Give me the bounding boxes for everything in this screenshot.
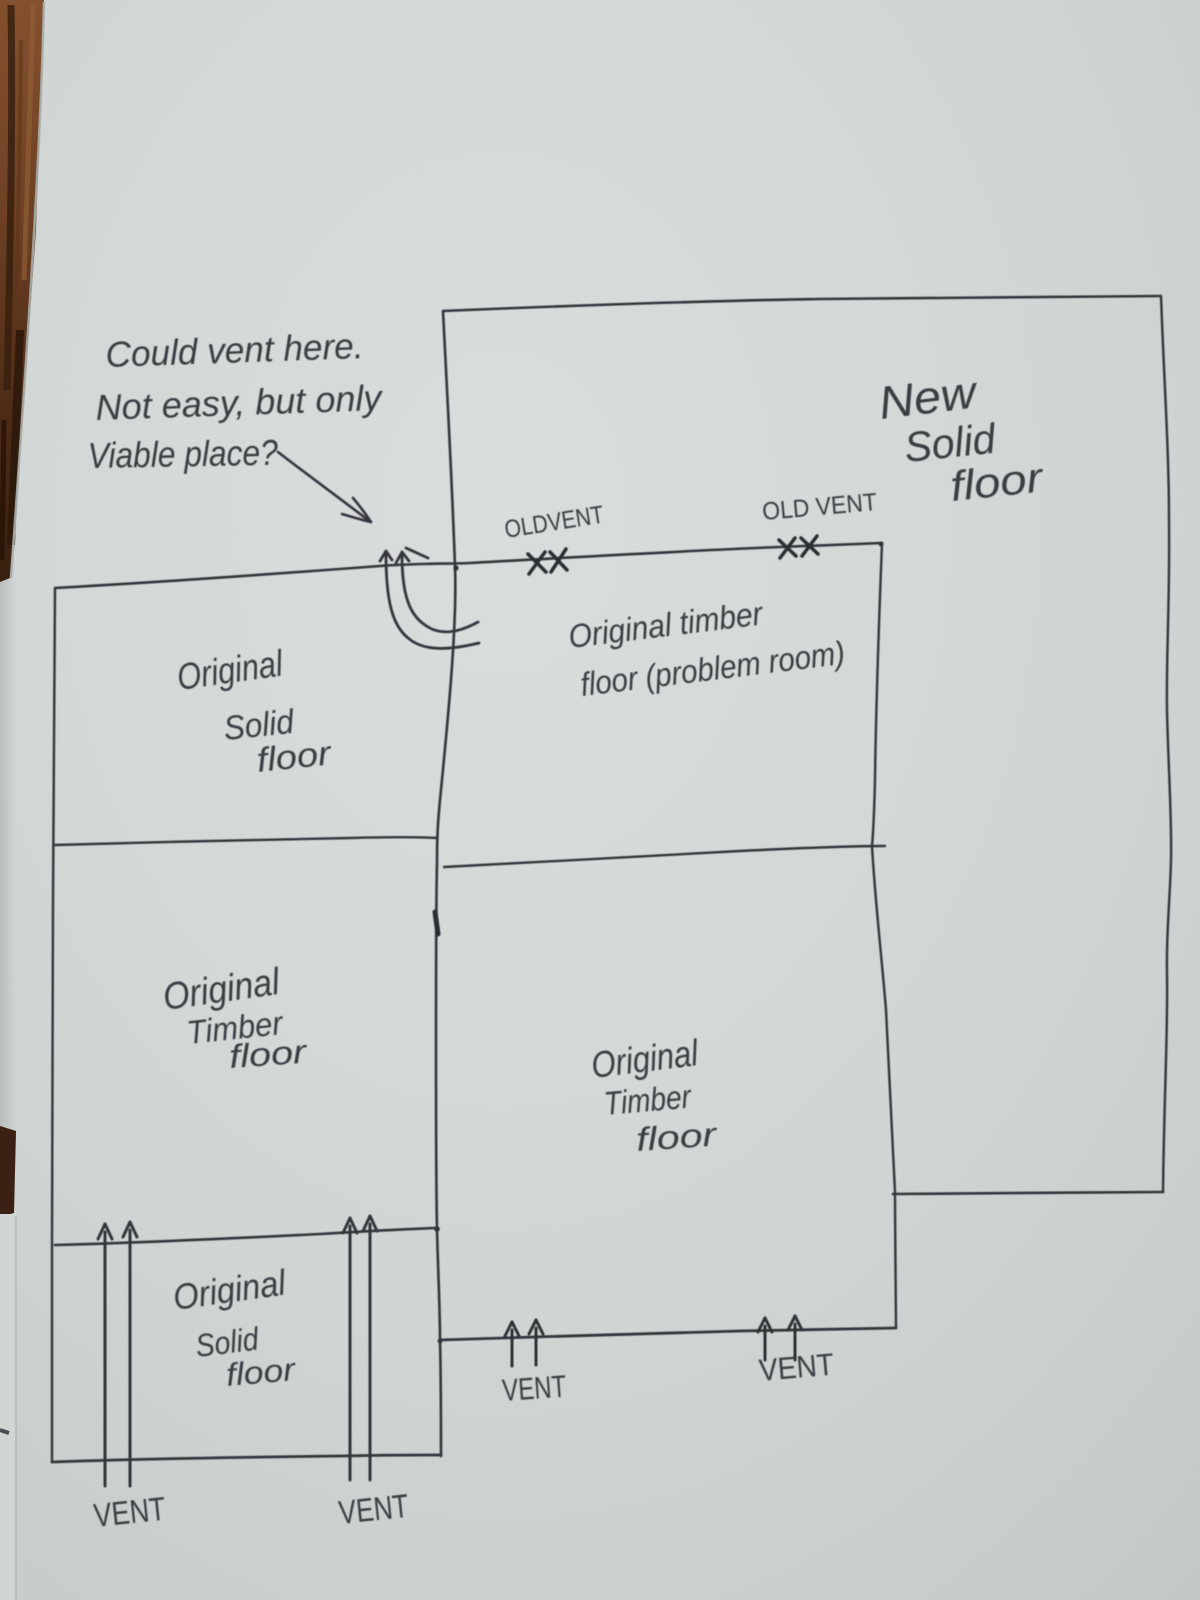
svg-text:VENT: VENT bbox=[758, 1347, 836, 1388]
svg-text:Timber: Timber bbox=[602, 1077, 694, 1122]
svg-text:Viable place?: Viable place? bbox=[87, 432, 278, 476]
svg-text:floor: floor bbox=[224, 1351, 297, 1393]
svg-text:floor: floor bbox=[948, 453, 1047, 510]
svg-text:VENT: VENT bbox=[92, 1490, 167, 1534]
svg-text:VENT: VENT bbox=[501, 1369, 567, 1408]
svg-text:floor: floor bbox=[255, 734, 334, 780]
svg-text:floor: floor bbox=[228, 1033, 310, 1075]
svg-text:VENT: VENT bbox=[337, 1487, 410, 1531]
svg-text:floor: floor bbox=[635, 1115, 720, 1158]
